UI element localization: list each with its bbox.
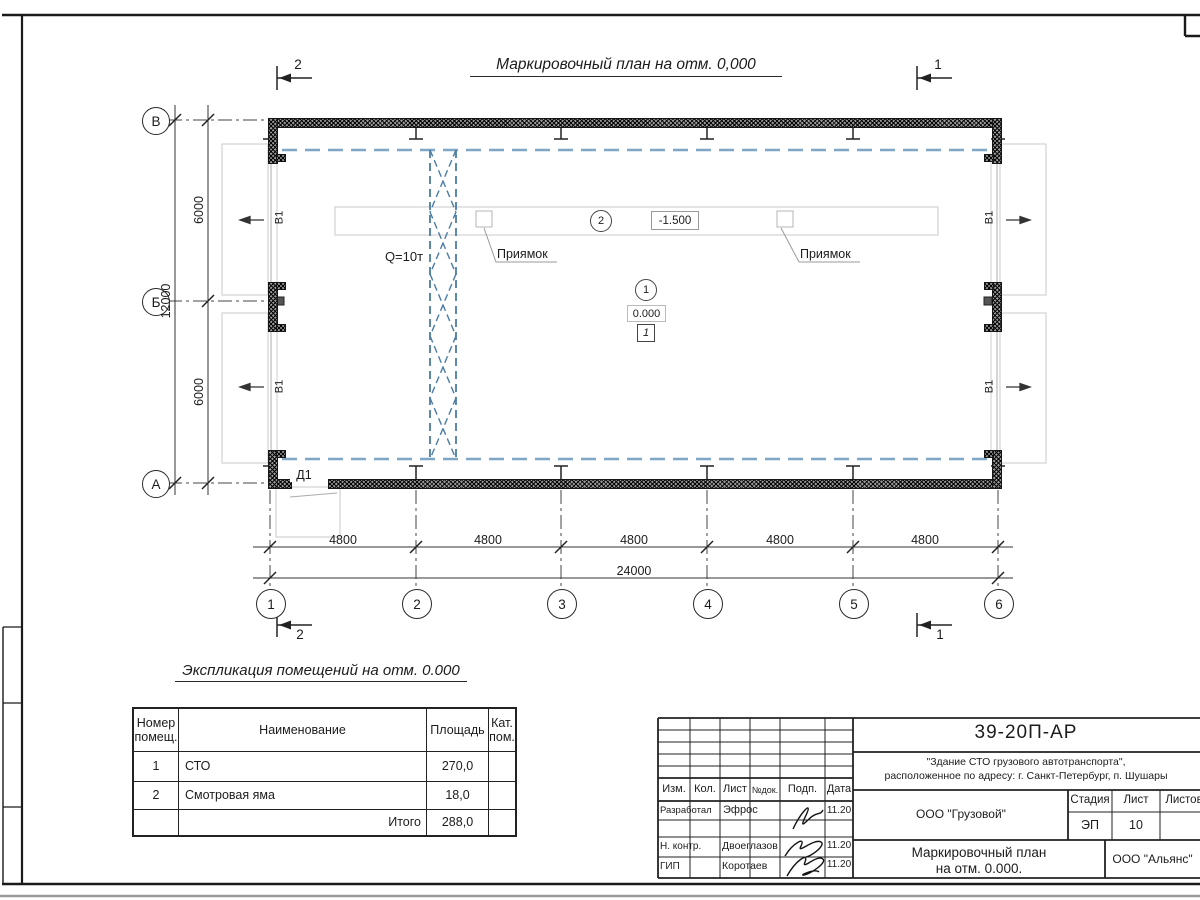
pier-right-b-tab1	[984, 282, 994, 290]
stamp-col-ndok: №док.	[750, 785, 780, 795]
stamp-drawing-title-line1: Маркировочный план	[856, 845, 1102, 860]
stamp-description-line2: расположенное по адресу: г. Санкт-Петерб…	[856, 770, 1196, 782]
floor-type-mark: 1	[643, 327, 649, 339]
wall-bottom	[328, 479, 1002, 489]
column-marks	[263, 126, 1005, 479]
stamp-drawing-title-line2: на отм. 0.000.	[856, 861, 1102, 876]
stamp-sheet-value: 10	[1112, 818, 1160, 832]
stamp-developed-date: 11.20	[826, 805, 852, 816]
drawing-sheet: Маркировочный план на отм. 0,000 В Б А 1…	[0, 0, 1200, 900]
expl-header-num: Номер помещ.	[134, 709, 179, 752]
stamp-doc-number: 39-20П-АР	[856, 722, 1196, 744]
pier-left-v-tab	[276, 154, 286, 162]
stamp-gip-label: ГИП	[660, 861, 680, 872]
axis-label: 5	[850, 597, 858, 612]
stamp-ncontrol-name: Двоеглазов	[722, 840, 778, 852]
gate-direction-arrows	[240, 217, 1030, 391]
pit-elevation: -1.500	[659, 215, 692, 227]
stamp-col-izm: Изм.	[658, 783, 690, 795]
door-mark: Д1	[290, 468, 318, 482]
pier-right-v-tab	[984, 154, 994, 162]
axis-bubble-1: 1	[256, 589, 286, 619]
room-bubble-2: 2	[590, 210, 612, 232]
pit-callout-2: Приямок	[800, 247, 851, 261]
expl-row1-num: 1	[134, 752, 179, 782]
gate-mark-right-upper: В1	[983, 207, 996, 229]
signature-scribbles	[785, 808, 824, 876]
pier-right-b-tab2	[984, 324, 994, 332]
pit-callout-1: Приямок	[497, 247, 548, 261]
dim-total-width: 24000	[604, 564, 664, 578]
stamp-developed-label: Разработал	[660, 805, 712, 816]
gate-mark-left-upper: В1	[273, 207, 286, 229]
expl-total-area: 288,0	[427, 810, 489, 835]
axis-bubble-v: В	[142, 107, 170, 135]
pier-left-b-tab2	[276, 324, 286, 332]
stamp-description-line1: "Здание СТО грузового автотранспорта",	[856, 756, 1196, 768]
stamp-customer: ООО "Грузовой"	[856, 807, 1066, 821]
expl-row2-name: Смотровая яма	[179, 782, 427, 810]
axis-label: 1	[267, 597, 275, 612]
dim-bay-1: 4800	[313, 533, 373, 547]
axis-label: А	[151, 477, 160, 492]
dim-bay-4: 4800	[750, 533, 810, 547]
axis-bubble-4: 4	[693, 589, 723, 619]
room-number: 2	[598, 215, 604, 227]
gate-mark-right-lower: В1	[983, 376, 996, 398]
axis-bubble-5: 5	[839, 589, 869, 619]
stamp-col-data: Дата	[825, 783, 853, 795]
dim-span-1: 6000	[192, 188, 206, 232]
pier-left-b-tab1	[276, 282, 286, 290]
room-number: 1	[643, 284, 649, 296]
expl-header-cat: Кат. пом.	[489, 709, 515, 752]
dim-total-depth: 12000	[159, 273, 173, 329]
dim-bay-5: 4800	[895, 533, 955, 547]
axis-label: 6	[995, 597, 1003, 612]
axis-bubble-6: 6	[984, 589, 1014, 619]
section-num-bottom-1: 1	[930, 627, 950, 642]
stamp-gip-date: 11.20	[826, 859, 852, 870]
axis-bubble-2: 2	[402, 589, 432, 619]
stamp-stage-label: Стадия	[1068, 794, 1112, 806]
floor-type-box: 1	[637, 324, 655, 342]
stamp-col-podp: Подп.	[780, 783, 825, 795]
crane-capacity-label: Q=10т	[374, 249, 434, 264]
axis-bubble-3: 3	[547, 589, 577, 619]
gate-mark-left-lower: В1	[273, 376, 286, 398]
stamp-col-list: Лист	[720, 783, 750, 795]
stamp-sheet-label: Лист	[1112, 794, 1160, 806]
floor-elevation: 0.000	[633, 308, 661, 320]
dimension-lines	[169, 105, 1013, 584]
floor-elevation-box: 0.000	[627, 305, 666, 322]
plan-title: Маркировочный план на отм. 0,000	[470, 56, 782, 77]
expl-row2-cat	[489, 782, 515, 810]
expl-row1-area: 270,0	[427, 752, 489, 782]
pier-left-a-tab	[276, 450, 286, 458]
expl-total-cat	[489, 810, 515, 835]
axis-label: 4	[704, 597, 712, 612]
explication-title: Экспликация помещений на отм. 0.000	[175, 662, 467, 682]
stamp-ncontrol-label: Н. контр.	[660, 841, 701, 852]
stamp-col-kol: Кол.	[690, 783, 720, 795]
expl-row2-area: 18,0	[427, 782, 489, 810]
section-num-bottom-2: 2	[290, 627, 310, 642]
axis-label: 2	[413, 597, 421, 612]
dim-bay-2: 4800	[458, 533, 518, 547]
expl-header-area: Площадь	[427, 709, 489, 752]
pit-elevation-box: -1.500	[651, 211, 699, 230]
section-marks	[277, 66, 952, 637]
wall-top	[268, 118, 1002, 128]
stamp-sheets-label: Листов	[1160, 794, 1200, 806]
axis-bubble-a: А	[142, 470, 170, 498]
dim-bay-3: 4800	[604, 533, 664, 547]
axis-label: 3	[558, 597, 566, 612]
expl-header-name: Наименование	[179, 709, 427, 752]
stamp-gip-name: Коротаев	[722, 860, 767, 872]
dim-span-2: 6000	[192, 370, 206, 414]
explication-table: Номер помещ. Наименование Площадь Кат. п…	[132, 707, 517, 837]
expl-row2-num: 2	[134, 782, 179, 810]
axis-label: В	[151, 114, 160, 129]
stamp-developed-name: Эфрос	[723, 804, 758, 816]
expl-total-empty	[134, 810, 179, 835]
section-num-top-2: 2	[288, 57, 308, 72]
expl-total-label: Итого	[179, 810, 427, 835]
stamp-ncontrol-date: 11.20	[826, 840, 852, 851]
section-num-top-1: 1	[928, 57, 948, 72]
expl-row1-name: СТО	[179, 752, 427, 782]
room-bubble-1: 1	[635, 279, 657, 301]
axis-lines	[168, 120, 998, 589]
stamp-stage-value: ЭП	[1068, 818, 1112, 832]
pier-right-a-tab	[984, 450, 994, 458]
stamp-contractor: ООО "Альянс"	[1105, 852, 1200, 866]
expl-row1-cat	[489, 752, 515, 782]
